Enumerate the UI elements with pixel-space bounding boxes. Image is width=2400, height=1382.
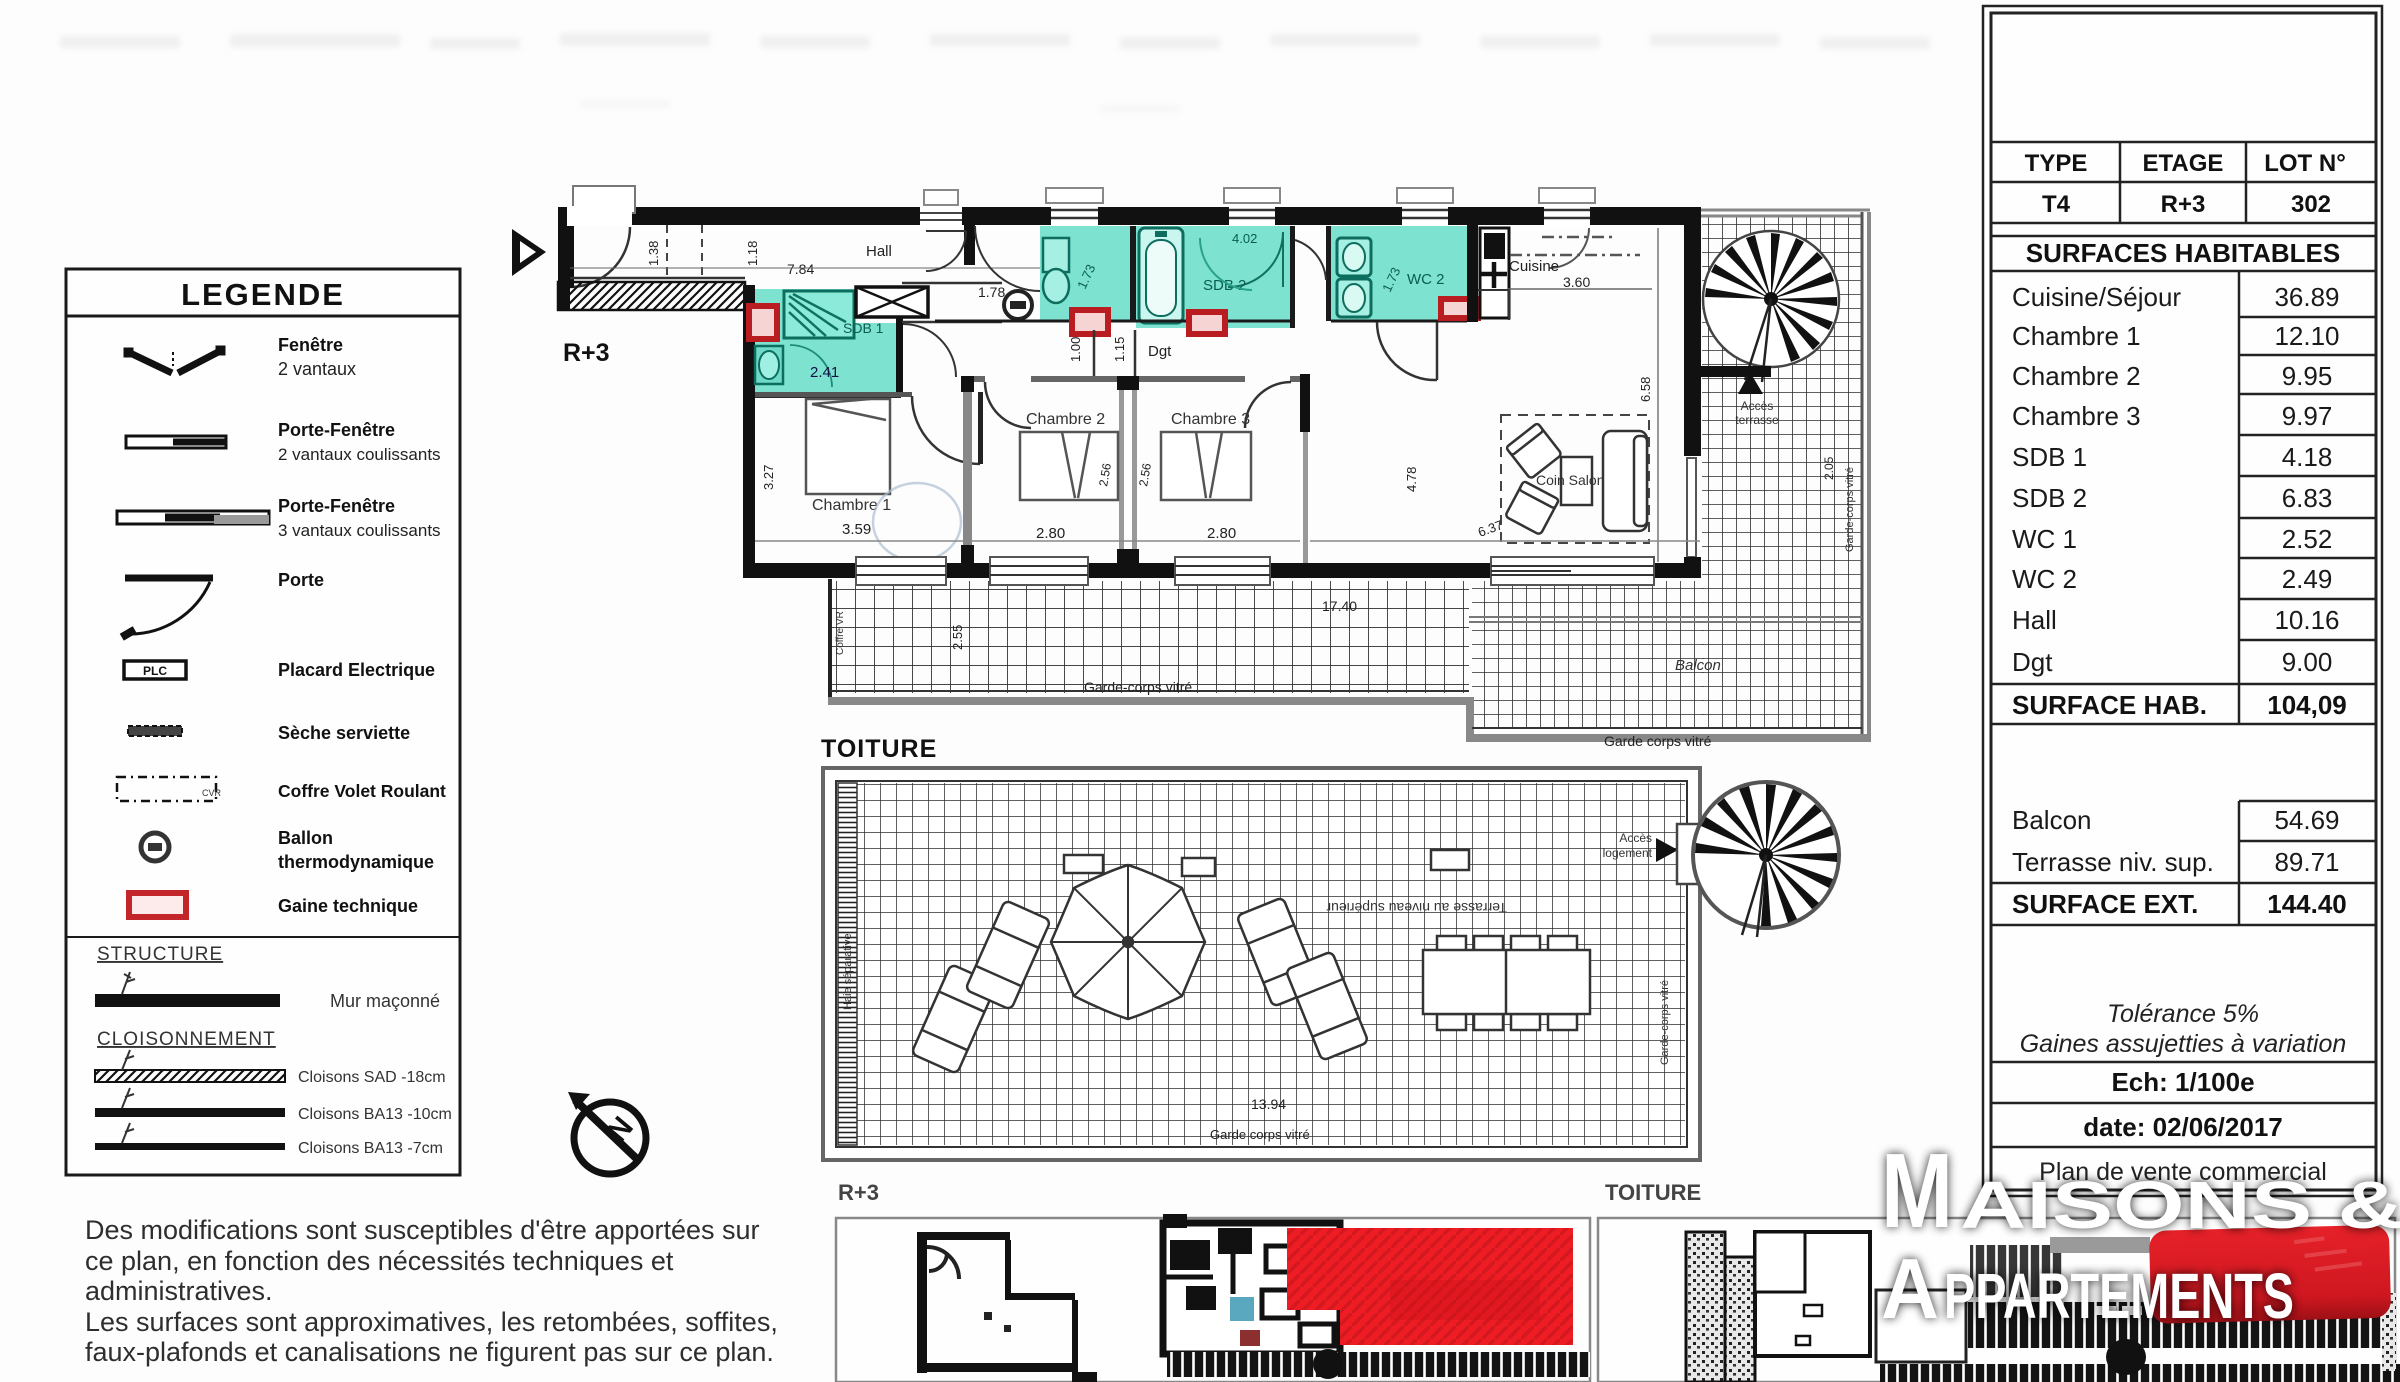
svg-text:CLOISONNEMENT: CLOISONNEMENT [97,1029,276,1050]
svg-text:Cuisine: Cuisine [1509,258,1559,275]
svg-text:PLC: PLC [143,664,167,678]
svg-text:Chambre 1: Chambre 1 [2012,321,2141,351]
svg-text:Garde corps vitré: Garde corps vitré [1210,1127,1310,1142]
svg-text:Gaine technique: Gaine technique [278,896,418,916]
svg-text:2.55: 2.55 [950,625,965,650]
svg-text:13.94: 13.94 [1251,1096,1286,1112]
svg-text:Terrasse au niveau supérieur: Terrasse au niveau supérieur [1326,900,1507,916]
svg-text:WC 2: WC 2 [2012,564,2077,594]
svg-text:Dgt: Dgt [2012,647,2053,677]
svg-text:36.89: 36.89 [2274,282,2339,312]
svg-text:7.84: 7.84 [787,261,814,277]
svg-text:Accès: Accès [1741,399,1774,413]
svg-text:3 vantaux coulissants: 3 vantaux coulissants [278,521,441,540]
svg-text:A: A [1881,1242,1939,1337]
svg-text:Placard Electrique: Placard Electrique [278,660,435,680]
svg-text:4.18: 4.18 [2282,442,2333,472]
svg-text:3.27: 3.27 [761,465,776,490]
svg-text:144.40: 144.40 [2267,889,2347,919]
svg-text:TOITURE: TOITURE [1605,1180,1701,1205]
svg-text:SURFACE EXT.: SURFACE EXT. [2012,889,2198,919]
svg-text:ETAGE: ETAGE [2143,150,2224,177]
svg-text:4.78: 4.78 [1404,467,1419,492]
svg-text:logement: logement [1603,846,1653,860]
svg-text:104,09: 104,09 [2267,690,2347,720]
svg-text:Des modifications sont suscept: Des modifications sont susceptibles d'êt… [85,1215,760,1245]
svg-text:Garde-corps vitré: Garde-corps vitré [1084,679,1192,695]
svg-text:Cloisons BA13 -10cm: Cloisons BA13 -10cm [298,1106,452,1123]
svg-text:2.52: 2.52 [2282,524,2333,554]
svg-text:Ech: 1/100e: Ech: 1/100e [2111,1067,2254,1097]
svg-text:SURFACES HABITABLES: SURFACES HABITABLES [2026,238,2340,268]
svg-text:Hall: Hall [866,243,892,260]
svg-text:17.40: 17.40 [1322,598,1357,614]
svg-text:M: M [1881,1132,1953,1250]
svg-text:2.80: 2.80 [1036,525,1065,542]
svg-text:4.02: 4.02 [1232,231,1257,246]
svg-text:2 vantaux coulissants: 2 vantaux coulissants [278,445,441,464]
svg-text:R+3: R+3 [838,1180,879,1205]
svg-text:Mur maçonné: Mur maçonné [330,991,440,1011]
svg-text:WC 1: WC 1 [2012,524,2077,554]
svg-text:R+3: R+3 [2161,191,2206,218]
svg-text:12.10: 12.10 [2274,321,2339,351]
svg-text:administratives.: administratives. [85,1276,273,1306]
svg-text:9.97: 9.97 [2282,401,2333,431]
svg-text:Sèche serviette: Sèche serviette [278,723,410,743]
svg-text:Ballon: Ballon [278,828,333,848]
svg-text:thermodynamique: thermodynamique [278,852,434,872]
svg-text:ce plan, en fonction des néces: ce plan, en fonction des nécessités tech… [85,1246,674,1276]
svg-text:Cloisons BA13 -7cm: Cloisons BA13 -7cm [298,1140,443,1157]
svg-text:Garde-corps vitré: Garde-corps vitré [1844,467,1856,552]
svg-text:1.38: 1.38 [646,241,661,266]
svg-text:faux-plafonds et canalisations: faux-plafonds et canalisations ne figure… [85,1337,774,1367]
svg-text:Balcon: Balcon [1675,657,1721,674]
svg-text:Porte-Fenêtre: Porte-Fenêtre [278,496,395,516]
svg-text:Coin Salon: Coin Salon [1536,472,1605,488]
svg-text:Tolérance 5%: Tolérance 5% [2107,1000,2259,1028]
svg-text:6.58: 6.58 [1638,377,1653,402]
svg-text:Garde corps vitré: Garde corps vitré [1604,733,1712,749]
svg-text:Hall: Hall [2012,605,2057,635]
svg-text:Coffre Volet Roulant: Coffre Volet Roulant [278,781,446,801]
svg-text:10.16: 10.16 [2274,605,2339,635]
svg-text:9.95: 9.95 [2282,361,2333,391]
svg-text:Les surfaces sont approximativ: Les surfaces sont approximatives, les re… [85,1307,778,1337]
svg-text:Accès: Accès [1619,831,1652,845]
svg-text:89.71: 89.71 [2274,847,2339,877]
svg-text:LOT N°: LOT N° [2264,150,2346,177]
svg-text:CVR: CVR [202,788,222,798]
svg-text:TOITURE: TOITURE [821,735,937,763]
svg-text:Gaines assujetties à variation: Gaines assujetties à variation [2020,1030,2347,1058]
svg-text:T4: T4 [2042,191,2071,218]
svg-text:terrasse: terrasse [1735,413,1779,427]
svg-text:LEGENDE: LEGENDE [181,277,345,312]
svg-text:54.69: 54.69 [2274,805,2339,835]
svg-text:Fenêtre: Fenêtre [278,335,343,355]
svg-text:9.00: 9.00 [2282,647,2333,677]
svg-text:R+3: R+3 [563,339,610,367]
svg-text:Chambre 3: Chambre 3 [2012,401,2141,431]
svg-text:1.78: 1.78 [978,284,1005,300]
svg-text:Dgt: Dgt [1148,343,1172,360]
svg-text:Balcon: Balcon [2012,805,2092,835]
svg-text:1.00: 1.00 [1068,337,1083,362]
svg-text:AISONS &: AISONS & [1960,1168,2400,1243]
svg-text:Chambre 2: Chambre 2 [2012,361,2141,391]
svg-text:Porte: Porte [278,570,324,590]
svg-text:Cloisons SAD -18cm: Cloisons SAD -18cm [298,1069,446,1086]
svg-text:SDB 2: SDB 2 [1203,277,1246,294]
svg-text:WC 2: WC 2 [1407,271,1445,288]
svg-text:Garde-corps vitré: Garde-corps vitré [1659,980,1671,1065]
svg-text:STRUCTURE: STRUCTURE [97,944,223,965]
svg-text:1.18: 1.18 [745,241,760,266]
svg-text:3.59: 3.59 [842,521,871,538]
svg-text:2.80: 2.80 [1207,525,1236,542]
svg-text:SDB 2: SDB 2 [2012,483,2087,513]
svg-text:2.49: 2.49 [2282,564,2333,594]
svg-text:Porte-Fenêtre: Porte-Fenêtre [278,420,395,440]
svg-text:Cuisine/Séjour: Cuisine/Séjour [2012,282,2181,312]
svg-text:3.60: 3.60 [1563,274,1590,290]
svg-text:2 vantaux: 2 vantaux [278,359,356,379]
svg-text:2.05: 2.05 [1822,456,1836,480]
svg-text:SDB 1: SDB 1 [2012,442,2087,472]
svg-text:Haie séparative: Haie séparative [842,934,854,1010]
svg-text:Chambre 3: Chambre 3 [1171,411,1250,428]
svg-text:1.15: 1.15 [1112,337,1127,362]
svg-text:Chambre 2: Chambre 2 [1026,411,1105,428]
svg-text:SDB 1: SDB 1 [843,320,884,336]
svg-text:Coffre VR: Coffre VR [835,611,846,655]
svg-text:Terrasse niv. sup.: Terrasse niv. sup. [2012,847,2214,877]
svg-text:date: 02/06/2017: date: 02/06/2017 [2083,1112,2282,1142]
svg-text:6.83: 6.83 [2282,483,2333,513]
svg-text:TYPE: TYPE [2025,150,2088,177]
svg-text:2.41: 2.41 [810,364,839,381]
svg-text:302: 302 [2291,191,2331,218]
svg-text:SURFACE HAB.: SURFACE HAB. [2012,690,2207,720]
svg-text:PPARTEMENTS: PPARTEMENTS [1944,1260,2294,1332]
